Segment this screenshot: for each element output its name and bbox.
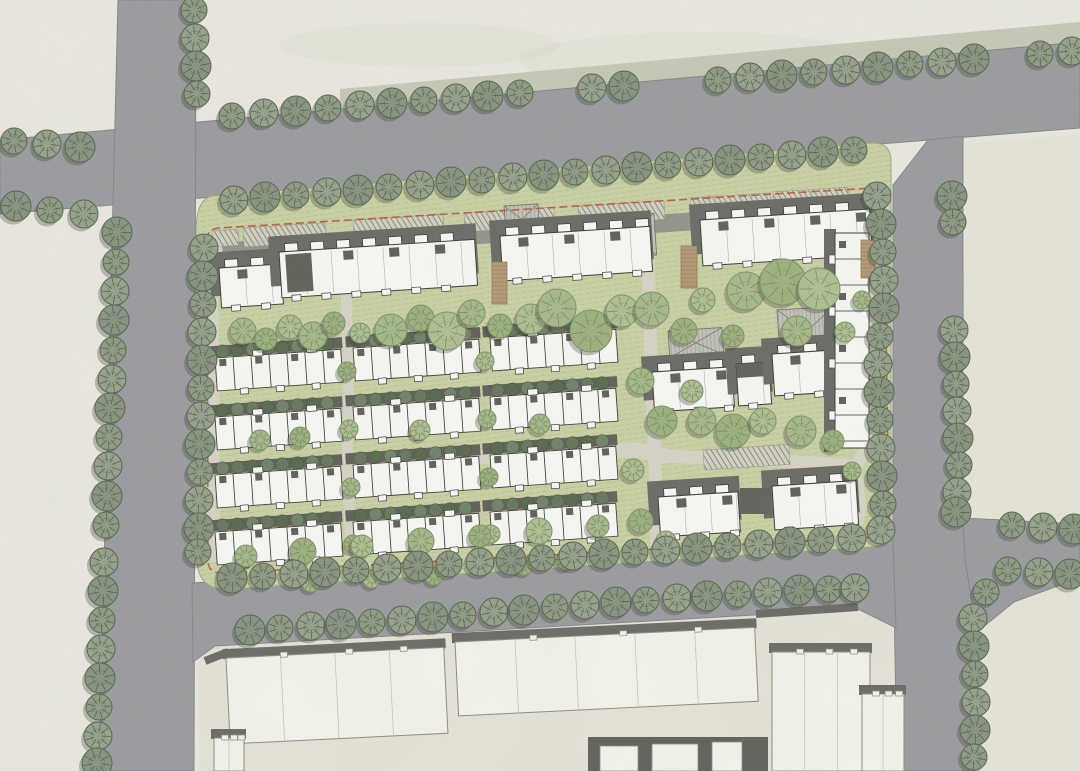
site-plan bbox=[0, 0, 1080, 771]
site-plan-canvas bbox=[0, 0, 1080, 771]
paper-grain bbox=[0, 0, 1080, 771]
site-plan-svg bbox=[0, 0, 1080, 771]
